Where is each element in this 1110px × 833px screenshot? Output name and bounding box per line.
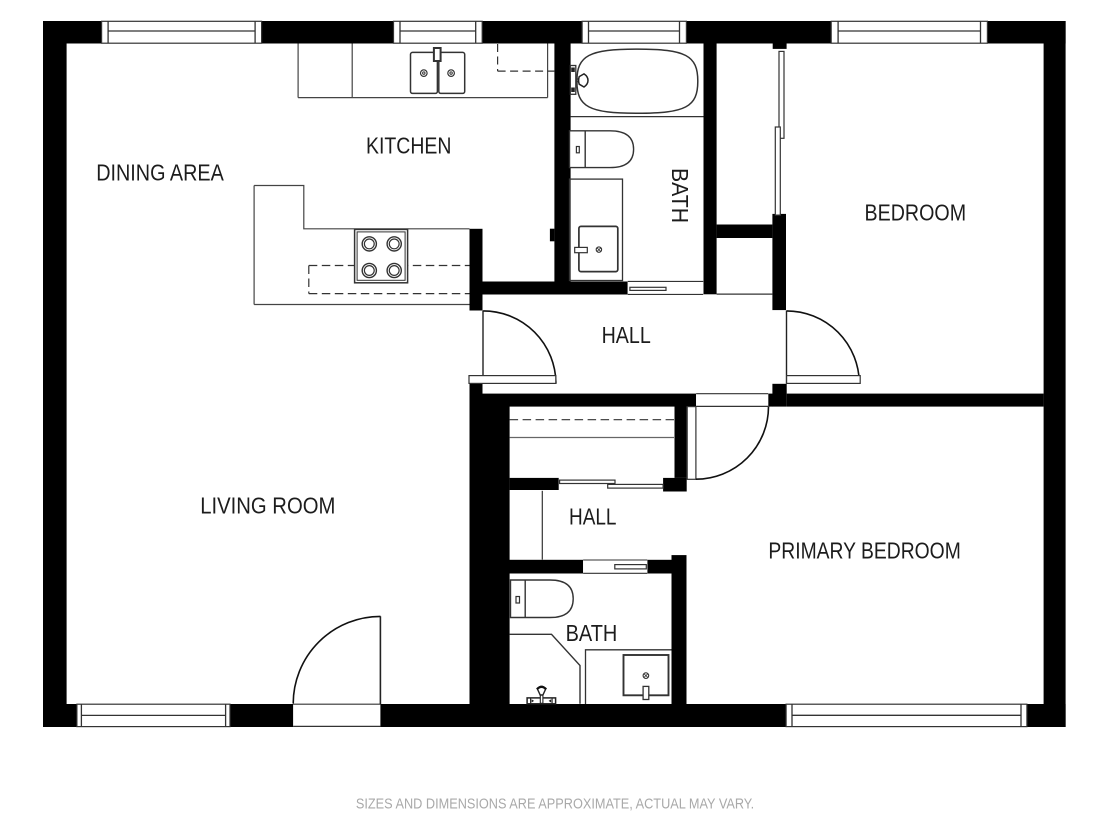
- svg-text:BATH: BATH: [667, 168, 693, 223]
- svg-text:LIVING ROOM: LIVING ROOM: [200, 492, 335, 518]
- svg-text:SIZES AND DIMENSIONS ARE APPRO: SIZES AND DIMENSIONS ARE APPROXIMATE, AC…: [356, 797, 754, 813]
- svg-text:HALL: HALL: [602, 322, 651, 348]
- svg-text:HALL: HALL: [569, 504, 617, 530]
- svg-text:KITCHEN: KITCHEN: [366, 133, 452, 159]
- svg-text:PRIMARY BEDROOM: PRIMARY BEDROOM: [768, 538, 960, 564]
- svg-text:BEDROOM: BEDROOM: [865, 199, 967, 225]
- svg-text:BATH: BATH: [566, 620, 618, 646]
- svg-text:DINING AREA: DINING AREA: [96, 160, 224, 186]
